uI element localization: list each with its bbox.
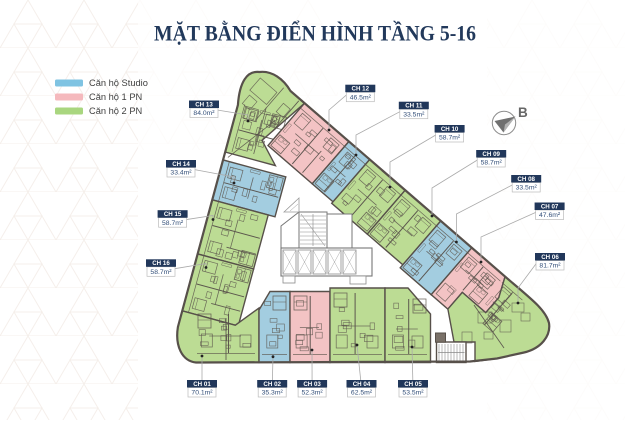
svg-text:52.3m²: 52.3m²: [302, 390, 324, 397]
svg-text:33.5m²: 33.5m²: [516, 185, 538, 192]
svg-text:CH 11: CH 11: [405, 103, 423, 110]
svg-text:33.4m²: 33.4m²: [170, 170, 192, 177]
svg-text:Căn hộ Studio: Căn hộ Studio: [89, 78, 148, 88]
svg-text:58.7m²: 58.7m²: [150, 269, 172, 276]
svg-text:Căn hộ 1 PN: Căn hộ 1 PN: [89, 92, 142, 102]
svg-text:MẶT BẰNG ĐIỂN HÌNH TẦNG 5-16: MẶT BẰNG ĐIỂN HÌNH TẦNG 5-16: [154, 21, 476, 46]
svg-text:CH 16: CH 16: [152, 260, 170, 267]
svg-text:35.3m²: 35.3m²: [262, 390, 284, 397]
svg-text:CH 03: CH 03: [303, 381, 321, 388]
svg-text:CH 12: CH 12: [352, 86, 370, 93]
svg-text:46.5m²: 46.5m²: [350, 94, 372, 101]
svg-text:CH 10: CH 10: [441, 126, 459, 133]
svg-text:CH 09: CH 09: [482, 151, 500, 158]
svg-text:58.7m²: 58.7m²: [439, 135, 461, 142]
svg-text:CH 05: CH 05: [404, 381, 422, 388]
svg-text:84.0m²: 84.0m²: [193, 110, 215, 117]
svg-text:B: B: [518, 105, 528, 120]
svg-text:53.5m²: 53.5m²: [402, 390, 424, 397]
svg-text:81.7m²: 81.7m²: [539, 263, 561, 270]
svg-text:CH 04: CH 04: [353, 381, 371, 388]
svg-text:CH 06: CH 06: [541, 254, 559, 261]
svg-text:CH 13: CH 13: [195, 101, 213, 108]
svg-text:70.1m²: 70.1m²: [191, 390, 213, 397]
svg-text:47.6m²: 47.6m²: [539, 212, 561, 219]
svg-text:CH 08: CH 08: [517, 176, 535, 183]
svg-text:62.5m²: 62.5m²: [351, 390, 373, 397]
svg-text:CH 14: CH 14: [172, 161, 190, 168]
svg-text:CH 15: CH 15: [164, 211, 182, 218]
svg-text:58.7m²: 58.7m²: [162, 220, 184, 227]
svg-text:CH 07: CH 07: [541, 203, 559, 210]
svg-text:CH 01: CH 01: [193, 381, 211, 388]
svg-text:CH 02: CH 02: [263, 381, 281, 388]
svg-text:33.5m²: 33.5m²: [403, 111, 425, 118]
svg-text:Căn hộ 2 PN: Căn hộ 2 PN: [89, 106, 142, 116]
svg-text:58.7m²: 58.7m²: [481, 160, 503, 167]
